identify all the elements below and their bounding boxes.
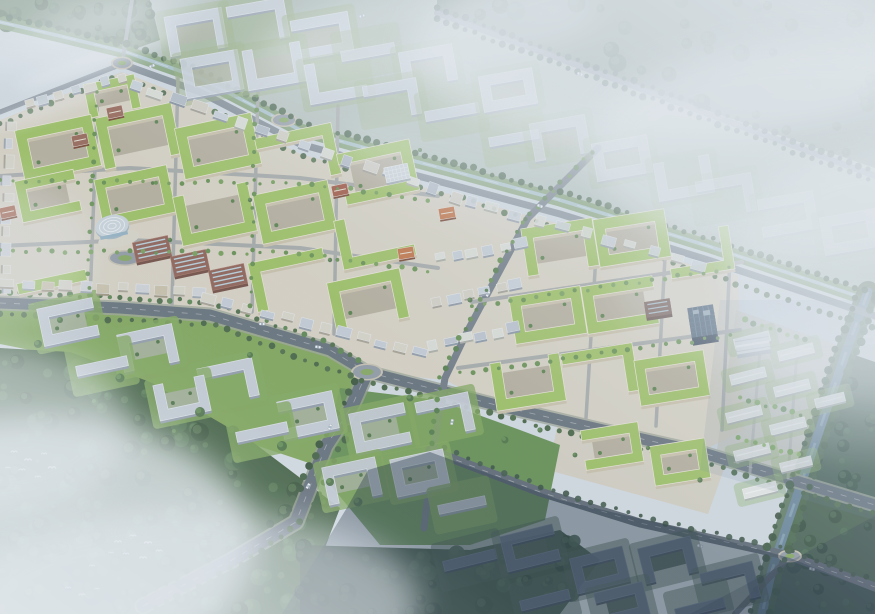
- fog-overlay-layer: [0, 0, 875, 614]
- aerial-render-viewport: [0, 0, 875, 614]
- masterplan-aerial-rendering: [0, 0, 875, 614]
- cool-tint-overlay: [0, 0, 875, 614]
